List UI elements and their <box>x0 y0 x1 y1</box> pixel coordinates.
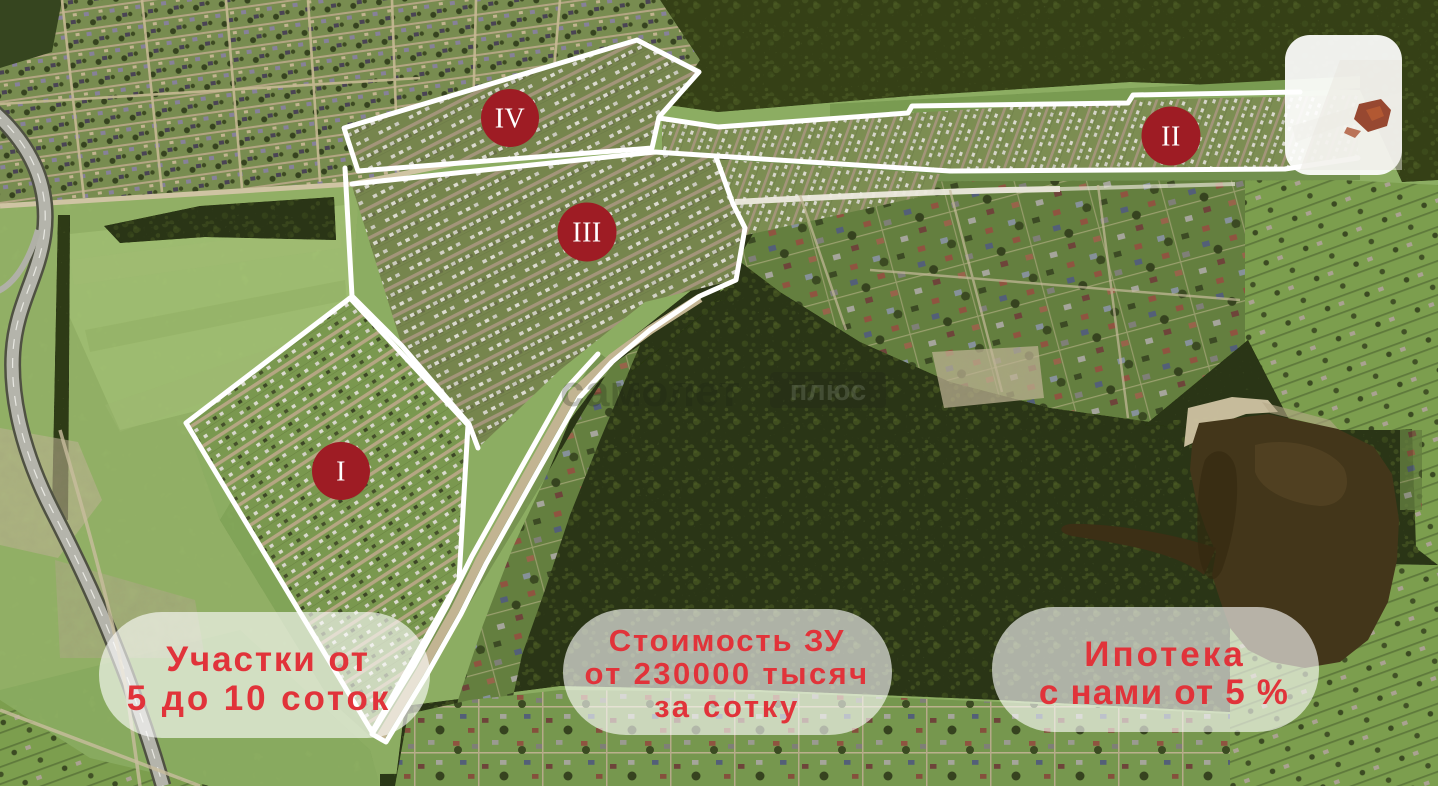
svg-text:III: III <box>572 218 601 249</box>
svg-text:плюс: плюс <box>790 375 866 407</box>
svg-text:за сотку: за сотку <box>654 689 800 724</box>
svg-text:Ипотека: Ипотека <box>1084 635 1245 674</box>
svg-text:II: II <box>1161 122 1181 153</box>
svg-text:Стоимость ЗУ: Стоимость ЗУ <box>609 623 846 658</box>
svg-text:Участки от: Участки от <box>166 640 370 679</box>
svg-text:5 до 10 соток: 5 до 10 соток <box>127 679 391 718</box>
svg-text:I: I <box>336 457 346 488</box>
svg-text:самолет: самолет <box>560 367 740 416</box>
svg-text:от 230000 тысяч: от 230000 тысяч <box>585 656 870 691</box>
svg-text:IV: IV <box>495 104 526 135</box>
svg-text:с нами от 5 %: с нами от 5 % <box>1039 673 1289 712</box>
